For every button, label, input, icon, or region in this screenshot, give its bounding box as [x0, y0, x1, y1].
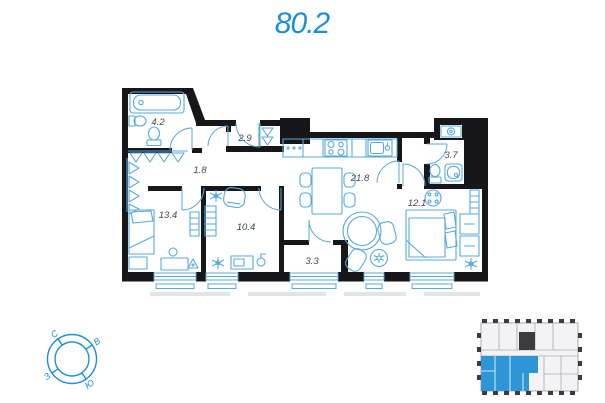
radiator-icon	[470, 190, 479, 214]
kitchen-sink-icon	[368, 140, 392, 156]
nightstand-icon	[129, 257, 147, 269]
closet-hangers-icon	[127, 158, 139, 214]
bed-icon	[129, 210, 154, 254]
mini-floor-plan-thumbnail[interactable]	[477, 319, 582, 395]
sink-icon	[129, 116, 146, 126]
dining-table-icon	[300, 168, 355, 214]
kitchen-door-icon	[377, 161, 399, 183]
bedroom1-door-icon	[182, 188, 204, 210]
compass-letters: С В З Ю	[42, 328, 102, 391]
room-label-bathroom: 4.2	[151, 117, 165, 128]
room-label-wardrobe: 2.9	[237, 133, 252, 144]
toilet-icon	[147, 127, 161, 146]
closet-hangers-icon	[128, 151, 188, 162]
floor-plan-canvas: 80.2	[0, 0, 605, 403]
compass-rose: С В З Ю	[42, 328, 102, 391]
balcony-door-icon	[309, 220, 331, 242]
duct-shaft	[280, 118, 310, 144]
window-icon	[410, 273, 454, 289]
vent-icon	[286, 146, 302, 150]
plant-icon	[465, 258, 477, 270]
stove-icon	[325, 140, 347, 156]
room-label-room: 10.4	[237, 222, 256, 233]
recycle-icon	[188, 259, 198, 268]
plant-icon	[210, 190, 222, 202]
desk-icon	[231, 256, 253, 269]
adjacent-structures	[150, 292, 480, 296]
bathtub-icon	[130, 92, 184, 113]
room-label-bedroom-2: 12.1	[408, 198, 427, 209]
shelf-icon	[205, 206, 216, 236]
elevator-core	[519, 332, 535, 350]
wardrobe-hangers-icon	[259, 123, 273, 146]
window-icon	[364, 273, 384, 289]
double-bed-icon	[406, 210, 457, 260]
wardrobe-icon	[460, 214, 479, 256]
room-label-hallway: 1.8	[193, 165, 207, 176]
shelf-icon	[190, 212, 199, 236]
lamp-icon	[257, 254, 266, 266]
room-label-bathroom-2: 3.7	[444, 150, 458, 161]
room-label-bedroom-1: 13.4	[159, 210, 178, 221]
round-sofa-icon	[343, 212, 381, 250]
room-label-kitchen: 21.8	[350, 173, 370, 184]
plant-icon	[212, 257, 224, 269]
compass-ring	[48, 335, 97, 384]
armchair-icon	[377, 220, 398, 245]
hall-door-icon	[403, 164, 425, 186]
bathroom-door-icon	[170, 128, 192, 150]
desk-icon	[161, 248, 188, 270]
window-icon	[290, 273, 338, 289]
wardrobe-door-icon	[208, 126, 228, 146]
window-icon	[206, 273, 238, 289]
toilet-icon	[429, 165, 441, 184]
room104-door-icon	[259, 188, 281, 210]
room-label-balcony: 3.3	[305, 256, 319, 267]
window-icon	[154, 273, 196, 289]
round-table-icon	[425, 190, 441, 206]
pouf-flower-icon	[371, 250, 388, 267]
plan-title: 80.2	[275, 7, 331, 40]
washer-niche	[440, 125, 462, 138]
shower-icon	[445, 164, 462, 181]
